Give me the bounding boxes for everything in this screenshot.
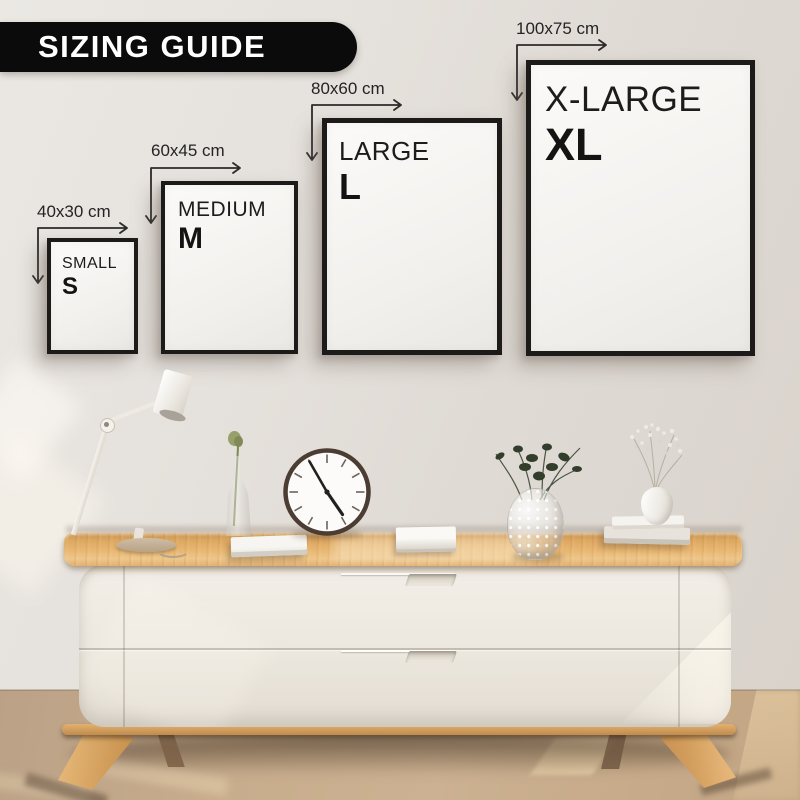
bubble-glass-vase	[507, 488, 564, 560]
dimension-label-xlarge: 100x75 cm	[516, 19, 599, 39]
stem-vase	[225, 430, 255, 538]
frame-medium: MEDIUM M	[161, 181, 298, 354]
lamp-elbow-pivot	[104, 422, 109, 427]
bottom-drawer-handle	[341, 650, 455, 664]
cabinet-body	[79, 564, 731, 727]
white-book	[396, 526, 456, 552]
desk-lamp	[92, 368, 212, 558]
size-name-small: SMALL	[62, 255, 134, 273]
white-book	[231, 535, 308, 558]
sizing-guide-scene: SIZING GUIDE 40x30 cm 60x45 cm 80x60 cm …	[0, 0, 800, 800]
frame-xlarge: X-LARGE XL	[526, 60, 755, 356]
frame-small: SMALL S	[47, 238, 138, 354]
cabinet-light-patch	[79, 575, 269, 727]
size-letter-xlarge: XL	[545, 119, 750, 171]
dimension-label-large: 80x60 cm	[311, 79, 385, 99]
page-title: SIZING GUIDE	[0, 29, 266, 65]
top-drawer-handle	[341, 573, 455, 587]
lamp-cable	[156, 542, 190, 558]
title-banner: SIZING GUIDE	[0, 22, 357, 72]
cabinet-right-seam	[678, 564, 680, 727]
size-name-xlarge: X-LARGE	[545, 80, 750, 119]
size-name-medium: MEDIUM	[178, 198, 294, 222]
size-letter-small: S	[62, 273, 134, 301]
size-letter-medium: M	[178, 222, 294, 257]
cabinet-left-seam	[123, 564, 125, 727]
size-name-large: LARGE	[339, 137, 497, 166]
glass-bottle	[225, 456, 252, 536]
frame-large: LARGE L	[322, 118, 502, 355]
dried-flower-spray	[622, 417, 688, 495]
wall-clock	[282, 447, 372, 537]
size-letter-large: L	[339, 166, 497, 207]
handle-notch	[405, 574, 457, 586]
handle-notch	[405, 651, 457, 663]
dimension-label-medium: 60x45 cm	[151, 141, 225, 161]
dimension-label-small: 40x30 cm	[37, 202, 111, 222]
